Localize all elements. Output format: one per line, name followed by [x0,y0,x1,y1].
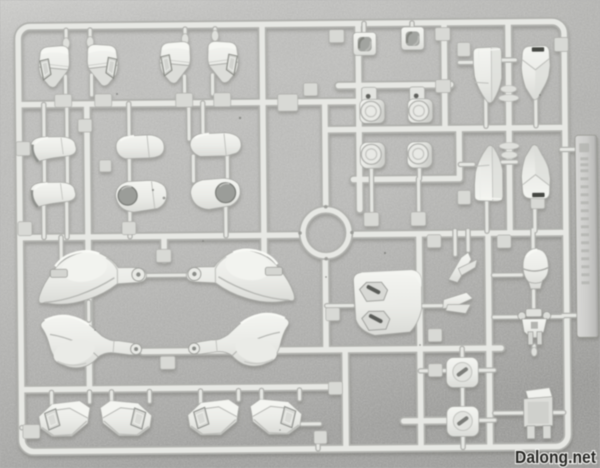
svg-text:Dalong.net: Dalong.net [515,447,596,467]
